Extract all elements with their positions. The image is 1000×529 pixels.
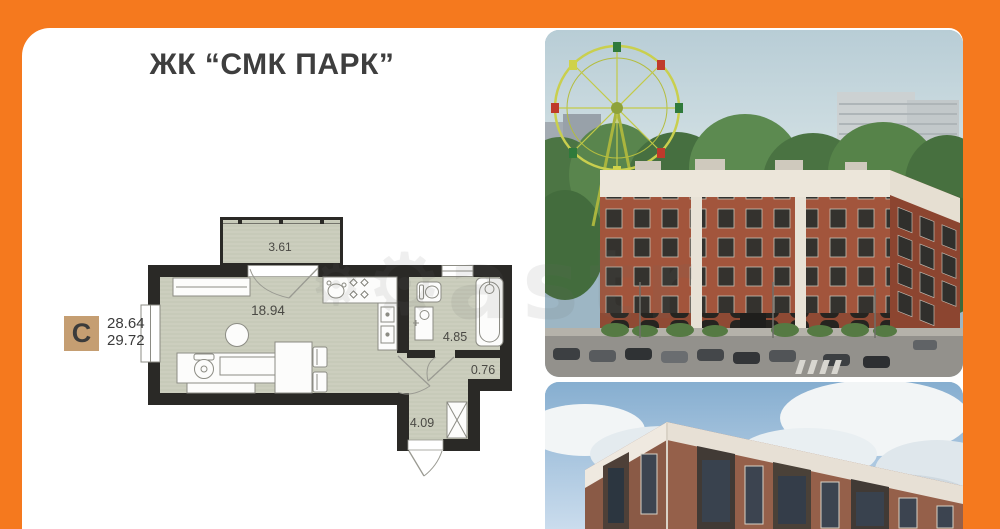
- chair-1: [313, 347, 327, 367]
- unit-type-badge: С: [64, 316, 99, 351]
- floor-plan: 3.61 18.94 4.85 0.76 4.09: [140, 195, 520, 495]
- room-area-balcony: 3.61: [268, 240, 292, 254]
- kitchen-sink: [328, 284, 344, 298]
- window-bathroom: [442, 266, 473, 277]
- entry-door: [408, 440, 443, 476]
- room-area-storage: 0.76: [471, 363, 495, 377]
- photo-building-render-bottom: [545, 382, 963, 529]
- round-table: [226, 324, 249, 347]
- photo-building-render-top: [545, 30, 963, 377]
- unit-area-total: 29.72: [107, 332, 145, 349]
- content-card: ЖК “СМК ПАРК”: [22, 28, 963, 529]
- flyer-background: { "header": { "title": "ЖК “СМК ПАРК”" }…: [0, 0, 1000, 529]
- unit-area-main: 28.64: [107, 315, 145, 332]
- dining-table: [275, 342, 312, 393]
- room-area-hall: 4.09: [410, 416, 434, 430]
- unit-area-values: 28.64 29.72: [107, 315, 145, 349]
- chair-2: [313, 372, 327, 392]
- room-area-living: 18.94: [251, 303, 285, 318]
- washing-machine: [413, 307, 433, 340]
- room-area-bathroom: 4.85: [443, 330, 467, 344]
- hall-closet: [447, 402, 467, 438]
- bathtub: [476, 277, 503, 346]
- page-title: ЖК “СМК ПАРК”: [32, 48, 512, 82]
- toilet: [417, 282, 441, 302]
